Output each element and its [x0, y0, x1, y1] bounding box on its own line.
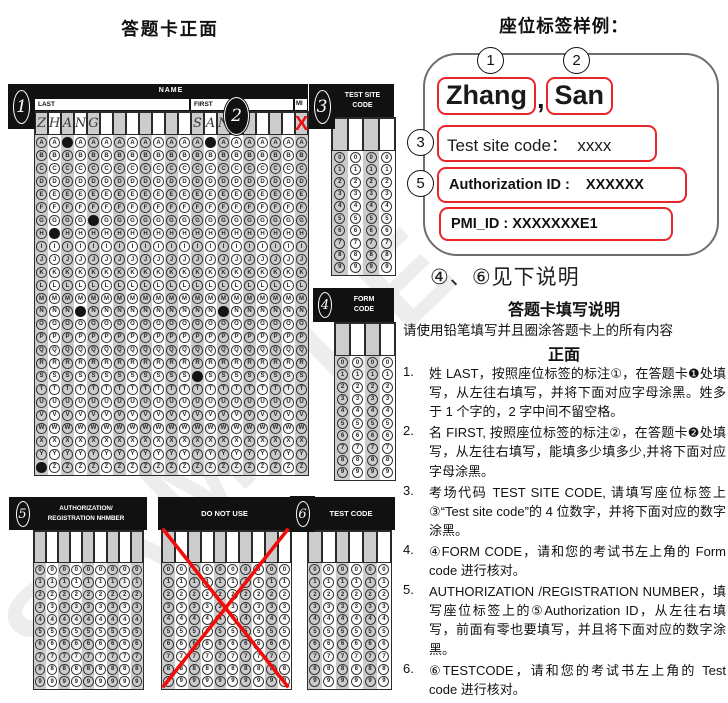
- bubble: D: [101, 176, 112, 187]
- bubble: Y: [153, 449, 164, 460]
- bubble: Q: [205, 345, 216, 356]
- write-box: H: [48, 112, 61, 135]
- bubble: D: [270, 176, 281, 187]
- bubble: 4: [71, 614, 82, 625]
- badge-2: 2: [224, 97, 249, 135]
- bubble: E: [231, 189, 242, 200]
- bubble: 1: [309, 577, 320, 588]
- grid-column: 0123456789: [119, 531, 131, 689]
- list-item: 4.④FORM CODE，请和您的考试书左上角的 Form code 进行核对。: [403, 542, 726, 580]
- bubble: A: [166, 137, 177, 148]
- bubble: I: [140, 241, 151, 252]
- list-item: 5.AUTHORIZATION /REGISTRATION NUMBER，填写座…: [403, 582, 726, 658]
- bubble: 4: [202, 614, 213, 625]
- bubble: Y: [101, 449, 112, 460]
- bubble: D: [244, 176, 255, 187]
- write-box: [348, 118, 364, 151]
- bubble: D: [257, 176, 268, 187]
- grid-column: 0123456789: [322, 531, 336, 689]
- bubble: 4: [365, 614, 376, 625]
- bubble: E: [62, 189, 73, 200]
- handwritten-letter: S: [193, 116, 202, 131]
- grid-column: 0123456789: [379, 118, 395, 275]
- bubble: C: [101, 163, 112, 174]
- bubble: 3: [59, 602, 70, 613]
- bubble: W: [192, 423, 203, 434]
- grid-column: 0123456789: [34, 531, 46, 689]
- grid-column: ABCDEFGHIJKLMNOPQRSTUVWXYZ: [230, 112, 243, 475]
- mi-label: MI: [295, 99, 307, 110]
- bubble: W: [140, 423, 151, 434]
- bubble: A: [127, 137, 138, 148]
- bubble: 9: [59, 676, 70, 687]
- bubble: 0: [337, 564, 348, 575]
- bubble: 3: [279, 602, 290, 613]
- bubble: J: [296, 254, 307, 265]
- bubble: 5: [337, 418, 348, 429]
- bubble: U: [296, 397, 307, 408]
- bubble: N: [296, 306, 307, 317]
- bubble: 5: [367, 418, 378, 429]
- bubble: S: [257, 371, 268, 382]
- bubble: 4: [352, 406, 363, 417]
- bubble: 9: [95, 676, 106, 687]
- bubble: 7: [381, 238, 392, 249]
- bubble: 6: [351, 639, 362, 650]
- authorization-grid: 0123456789012345678901234567890123456789…: [33, 530, 144, 690]
- bubble: 6: [47, 639, 58, 650]
- bubble: 1: [365, 577, 376, 588]
- bubble: T: [244, 384, 255, 395]
- bubble: M: [166, 293, 177, 304]
- bubble: 8: [119, 664, 130, 675]
- bubble: P: [140, 332, 151, 343]
- bubble: B: [88, 150, 99, 161]
- bubble: 3: [35, 602, 46, 613]
- bubble: R: [257, 358, 268, 369]
- bubble: 7: [119, 652, 130, 663]
- bubble: X: [231, 436, 242, 447]
- write-box: [380, 323, 395, 356]
- bubble: D: [62, 176, 73, 187]
- bubble: 9: [240, 676, 251, 687]
- bubble: 9: [337, 676, 348, 687]
- bubble: 9: [279, 676, 290, 687]
- bubble: L: [205, 280, 216, 291]
- instructions-list: 1.姓 LAST，按照座位标签的标注①，在答题卡❶处填写，从左往右填写，并将下面…: [403, 364, 726, 701]
- bubble: I: [205, 241, 216, 252]
- bubble: 7: [35, 652, 46, 663]
- list-item: 6.⑥TESTCODE，请和您的考试书左上角的 Test code 进行核对。: [403, 661, 726, 699]
- item-number: 1.: [403, 364, 429, 421]
- bubble: 3: [334, 189, 345, 200]
- bubble: M: [153, 293, 164, 304]
- bubble: 4: [132, 614, 143, 625]
- bubble: K: [127, 267, 138, 278]
- bubble: 8: [367, 455, 378, 466]
- bubble: 7: [215, 651, 226, 662]
- bubble: 2: [378, 589, 389, 600]
- bubble: 6: [163, 639, 174, 650]
- bubble: P: [75, 332, 86, 343]
- bubble: W: [244, 423, 255, 434]
- bubble: O: [257, 319, 268, 330]
- bubble: E: [244, 189, 255, 200]
- bubble: S: [218, 371, 229, 382]
- bubble: B: [127, 150, 138, 161]
- bubble: N: [192, 306, 203, 317]
- bubble: G: [88, 215, 99, 226]
- bubble: 0: [35, 565, 46, 576]
- bubble: 7: [95, 652, 106, 663]
- grid-column: ABCDEFGHIJKLMNOPQRSTUVWXYZ: [126, 112, 139, 475]
- bubble: M: [192, 293, 203, 304]
- bubble: 4: [227, 614, 238, 625]
- bubble: 2: [95, 590, 106, 601]
- bubble: J: [49, 254, 60, 265]
- bubble: H: [270, 228, 281, 239]
- bubble: 6: [83, 639, 94, 650]
- bubble: G: [270, 215, 281, 226]
- bubble: 2: [279, 589, 290, 600]
- bubble: 7: [189, 651, 200, 662]
- red-x-mark: X: [295, 114, 308, 134]
- grid-column: 0123456789: [377, 531, 391, 689]
- item-number: 3.: [403, 483, 429, 540]
- bubble: T: [127, 384, 138, 395]
- item-text: 考场代码 TEST SITE CODE, 请填写座位标签上③“Test site…: [429, 483, 726, 540]
- bubble: 8: [83, 664, 94, 675]
- bubble: 8: [59, 664, 70, 675]
- bubble: R: [244, 358, 255, 369]
- bubble: 2: [189, 589, 200, 600]
- bubble: 4: [176, 614, 187, 625]
- bubble: S: [192, 371, 203, 382]
- bubble: 5: [107, 627, 118, 638]
- bubble: Y: [49, 449, 60, 460]
- bubble: Y: [36, 449, 47, 460]
- bubble: W: [296, 423, 307, 434]
- bubble: O: [270, 319, 281, 330]
- bubble: Y: [218, 449, 229, 460]
- bubble: V: [49, 410, 60, 421]
- bubble: R: [140, 358, 151, 369]
- bubble: 1: [215, 577, 226, 588]
- bubble: K: [166, 267, 177, 278]
- bubble: 7: [266, 651, 277, 662]
- name-comma: ,: [537, 85, 545, 115]
- bubble: 3: [163, 602, 174, 613]
- bubble: J: [153, 254, 164, 265]
- bubble: Z: [62, 462, 73, 473]
- bubble: F: [192, 202, 203, 213]
- bubble: 0: [189, 564, 200, 575]
- bubble: 8: [352, 455, 363, 466]
- bubble: 5: [71, 627, 82, 638]
- bubble: N: [205, 306, 216, 317]
- bubble: 6: [337, 430, 348, 441]
- bubble: Y: [75, 449, 86, 460]
- item-number: 4.: [403, 542, 429, 580]
- bubble: N: [101, 306, 112, 317]
- bubble: P: [283, 332, 294, 343]
- handwritten-letter: H: [49, 116, 60, 131]
- bubble: O: [127, 319, 138, 330]
- bubble: X: [49, 436, 60, 447]
- bubble: 7: [132, 652, 143, 663]
- write-box: [139, 112, 152, 135]
- bubble: 7: [352, 443, 363, 454]
- bubble: C: [166, 163, 177, 174]
- bubble: Q: [244, 345, 255, 356]
- bubble: Y: [283, 449, 294, 460]
- bubble: W: [257, 423, 268, 434]
- bubble: W: [270, 423, 281, 434]
- bubble: U: [75, 397, 86, 408]
- instructions-section-front: 正面: [400, 341, 728, 365]
- bubble: U: [101, 397, 112, 408]
- bubble: I: [88, 241, 99, 252]
- bubble: 2: [334, 177, 345, 188]
- bubble: 5: [350, 213, 361, 224]
- grid-column: ABCDEFGHIJKLMNOPQRSTUVWXYZ: [152, 112, 165, 475]
- write-box: [269, 112, 282, 135]
- bubble: 0: [352, 357, 363, 368]
- bubble: M: [218, 293, 229, 304]
- bubble: 8: [132, 664, 143, 675]
- bubble: M: [231, 293, 242, 304]
- bubble: 8: [253, 664, 264, 675]
- bubble: 9: [352, 467, 363, 478]
- bubble: G: [192, 215, 203, 226]
- bubble: S: [75, 371, 86, 382]
- bubble: W: [62, 423, 73, 434]
- bubble: X: [101, 436, 112, 447]
- bubble: L: [88, 280, 99, 291]
- bubble: S: [270, 371, 281, 382]
- bubble: 8: [350, 250, 361, 261]
- bubble: H: [218, 228, 229, 239]
- bubble: P: [244, 332, 255, 343]
- grid-column: ABCDEFGHIJKLMNOPQRSTUVWXYZ: [139, 112, 152, 475]
- badge-3-numeral: 3: [314, 90, 331, 124]
- bubble: X: [192, 436, 203, 447]
- bubble: T: [75, 384, 86, 395]
- bubble: 3: [83, 602, 94, 613]
- bubble: 6: [266, 639, 277, 650]
- bubble: G: [101, 215, 112, 226]
- bubble: 3: [215, 602, 226, 613]
- bubble: 5: [215, 626, 226, 637]
- bubble: 4: [366, 201, 377, 212]
- bubble: L: [231, 280, 242, 291]
- write-box: [107, 531, 119, 563]
- bubble: M: [127, 293, 138, 304]
- bubble: I: [192, 241, 203, 252]
- bubble: 6: [350, 225, 361, 236]
- bubble: V: [127, 410, 138, 421]
- bubble: U: [114, 397, 125, 408]
- bubble: 3: [107, 602, 118, 613]
- bubble: U: [62, 397, 73, 408]
- grid-column: 0123456789: [175, 531, 188, 689]
- bubble: A: [192, 137, 203, 148]
- bubble: 0: [350, 152, 361, 163]
- callout-circle-1: 1: [477, 47, 504, 74]
- bubble: C: [88, 163, 99, 174]
- bubble: 3: [119, 602, 130, 613]
- bubble: N: [114, 306, 125, 317]
- bubble: D: [114, 176, 125, 187]
- name-row: Zhang , San: [437, 77, 613, 115]
- bubble: 3: [382, 394, 393, 405]
- bubble: 5: [240, 626, 251, 637]
- bubble: 3: [350, 189, 361, 200]
- bubble: R: [231, 358, 242, 369]
- bubble: Q: [231, 345, 242, 356]
- bubble: 4: [382, 406, 393, 417]
- bubble: Z: [270, 462, 281, 473]
- bubble: L: [179, 280, 190, 291]
- bubble: 5: [366, 213, 377, 224]
- bubble: V: [140, 410, 151, 421]
- bubble: D: [218, 176, 229, 187]
- bubble: W: [49, 423, 60, 434]
- last-name-text: Zhang: [439, 79, 534, 113]
- bubble: E: [153, 189, 164, 200]
- bubble: 1: [381, 164, 392, 175]
- bubble: Q: [192, 345, 203, 356]
- bubble: V: [205, 410, 216, 421]
- write-box: [377, 531, 391, 563]
- bubble: 8: [107, 664, 118, 675]
- bubble: 5: [59, 627, 70, 638]
- bubble: G: [257, 215, 268, 226]
- bubble: 6: [59, 639, 70, 650]
- bubble: 4: [253, 614, 264, 625]
- bubble: 4: [367, 406, 378, 417]
- bubble: J: [101, 254, 112, 265]
- bubble: 7: [163, 651, 174, 662]
- bubble: 4: [95, 614, 106, 625]
- bubble: 0: [176, 564, 187, 575]
- bubble: 4: [351, 614, 362, 625]
- bubble: S: [36, 371, 47, 382]
- bubble: 8: [378, 664, 389, 675]
- bubble: Y: [244, 449, 255, 460]
- bubble: 5: [352, 418, 363, 429]
- bubble: 5: [351, 626, 362, 637]
- bubble: R: [114, 358, 125, 369]
- bubble: B: [75, 150, 86, 161]
- bubble: J: [244, 254, 255, 265]
- bubble: B: [218, 150, 229, 161]
- bubble: 3: [365, 602, 376, 613]
- bubble: 1: [337, 577, 348, 588]
- bubble: O: [62, 319, 73, 330]
- bubble: 6: [382, 430, 393, 441]
- bubble: 2: [202, 589, 213, 600]
- write-box: [113, 112, 126, 135]
- bubble: X: [244, 436, 255, 447]
- bubble: J: [257, 254, 268, 265]
- bubble: 2: [119, 590, 130, 601]
- bubble: 8: [215, 664, 226, 675]
- bubble: K: [114, 267, 125, 278]
- bubble: 9: [83, 676, 94, 687]
- bubble: D: [127, 176, 138, 187]
- bubble: D: [283, 176, 294, 187]
- bubble: Y: [192, 449, 203, 460]
- bubble: 6: [215, 639, 226, 650]
- bubble: G: [283, 215, 294, 226]
- instructions-lead: 请使用铅笔填写并且圈涂答题卡上的所有内容: [403, 319, 728, 339]
- bubble: U: [231, 397, 242, 408]
- bubble: A: [179, 137, 190, 148]
- bubble: 8: [279, 664, 290, 675]
- bubble: L: [296, 280, 307, 291]
- bubble: J: [75, 254, 86, 265]
- grid-column: 0123456789: [349, 531, 363, 689]
- bubble: R: [62, 358, 73, 369]
- bubble: 2: [163, 589, 174, 600]
- bubble: 1: [176, 577, 187, 588]
- bubble: 4: [163, 614, 174, 625]
- bubble: A: [218, 137, 229, 148]
- bubble: E: [296, 189, 307, 200]
- bubble: U: [166, 397, 177, 408]
- write-box: [131, 531, 143, 563]
- bubble: 6: [95, 639, 106, 650]
- bubble: S: [179, 371, 190, 382]
- bubble: H: [36, 228, 47, 239]
- bubble: C: [270, 163, 281, 174]
- bubble: 4: [309, 614, 320, 625]
- bubble: 8: [365, 664, 376, 675]
- bubble: M: [179, 293, 190, 304]
- bubble: A: [49, 137, 60, 148]
- bubble: H: [88, 228, 99, 239]
- bubble: P: [49, 332, 60, 343]
- bubble: 5: [202, 626, 213, 637]
- badge-5-numeral: 5: [16, 501, 30, 527]
- bubble: 7: [309, 651, 320, 662]
- bubble: Q: [218, 345, 229, 356]
- bubble: W: [127, 423, 138, 434]
- bubble: L: [153, 280, 164, 291]
- bubble: 5: [381, 213, 392, 224]
- badge-3: 3: [309, 84, 335, 129]
- bubble: F: [270, 202, 281, 213]
- grid-column: ZABCDEFGHIJKLMNOPQRSTUVWXYZ: [35, 112, 48, 475]
- bubble: O: [140, 319, 151, 330]
- bubble: M: [36, 293, 47, 304]
- grid-column: AABCDEFGHIJKLMNOPQRSTUVWXYZ: [204, 112, 217, 475]
- bubble: J: [62, 254, 73, 265]
- grid-column: 0123456789: [70, 531, 82, 689]
- bubble: D: [179, 176, 190, 187]
- grid-column: ABCDEFGHIJKLMNOPQRSTUVWXYZ: [282, 112, 295, 475]
- bubble: R: [88, 358, 99, 369]
- bubble: D: [296, 176, 307, 187]
- bubble: G: [166, 215, 177, 226]
- bubble: I: [270, 241, 281, 252]
- grid-column: 0123456789: [348, 118, 364, 275]
- bubble: 5: [337, 626, 348, 637]
- bubble: P: [166, 332, 177, 343]
- bubble: 7: [365, 651, 376, 662]
- note-4-6: ④、⑥见下说明: [430, 261, 580, 291]
